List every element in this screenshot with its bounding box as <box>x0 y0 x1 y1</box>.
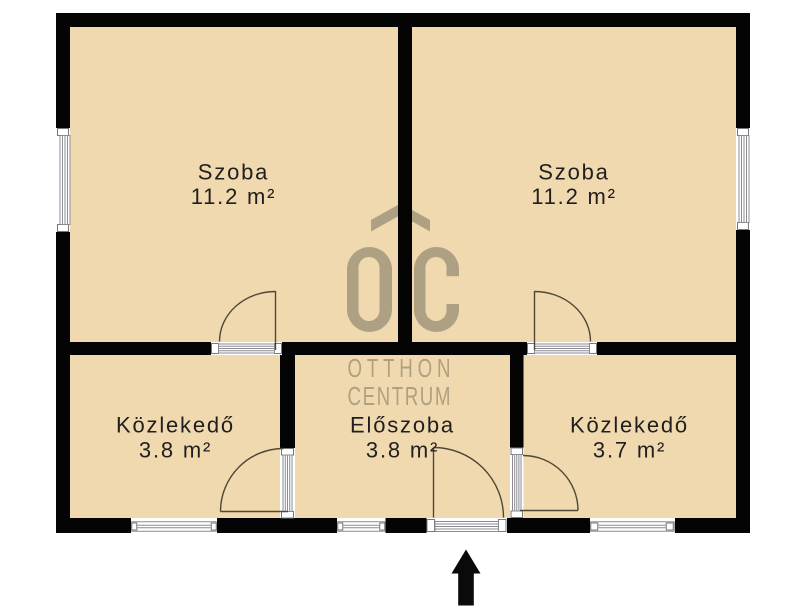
svg-text:3.8 m²: 3.8 m² <box>366 438 439 463</box>
svg-text:Előszoba: Előszoba <box>350 413 455 438</box>
svg-text:3.7 m²: 3.7 m² <box>593 438 666 463</box>
svg-text:Szoba: Szoba <box>538 160 609 185</box>
svg-text:Közlekedő: Közlekedő <box>116 413 235 438</box>
svg-text:Szoba: Szoba <box>198 160 269 185</box>
svg-text:11.2 m²: 11.2 m² <box>191 184 277 209</box>
svg-text:3.8 m²: 3.8 m² <box>139 438 212 463</box>
svg-text:Közlekedő: Közlekedő <box>570 413 689 438</box>
svg-text:CENTRUM: CENTRUM <box>348 381 451 411</box>
svg-text:11.2 m²: 11.2 m² <box>531 184 617 209</box>
